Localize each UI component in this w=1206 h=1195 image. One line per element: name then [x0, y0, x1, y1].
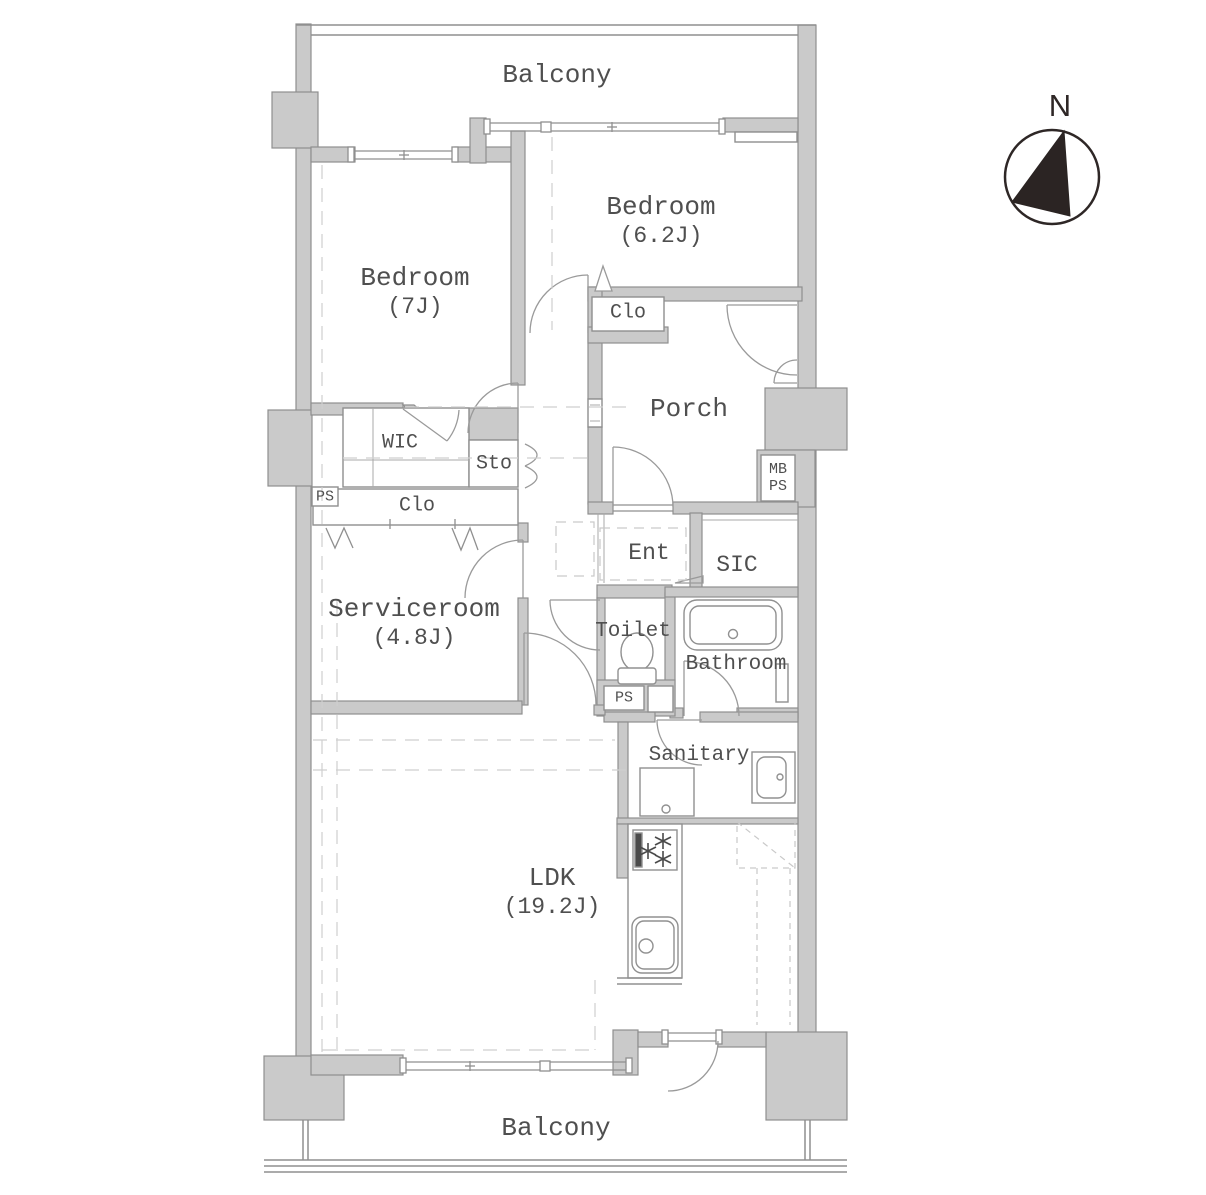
wall-left-outer [296, 24, 311, 1060]
wall-ent-south [597, 585, 672, 598]
ldk-size: (19.2J) [504, 894, 601, 920]
duct-box [648, 686, 673, 712]
wall-kitchen-north [617, 818, 798, 824]
door-porch-outer [727, 305, 797, 383]
window-bedroom1 [348, 147, 458, 162]
washing-machine [640, 768, 694, 816]
wall-bedroom-divider [511, 131, 525, 385]
door-balcony [668, 1041, 718, 1091]
hanger-mark-right [452, 528, 478, 550]
wall-serviceroom-south [311, 701, 522, 714]
door-front-entrance [613, 447, 673, 507]
wall-bathroom-north [665, 587, 798, 597]
floor-plan: Balcony Bedroom (7J) Bedroom (6.2J) Clo … [0, 0, 1206, 1195]
room-label-clo-mid: Clo [399, 495, 435, 518]
washbasin [752, 752, 795, 803]
compass [1005, 130, 1099, 224]
mbps-line-mb: MB [769, 461, 787, 478]
room-label-bathroom: Bathroom [686, 653, 787, 677]
wall-serviceroom-east-top [518, 523, 528, 542]
bedroom-6j-size: (6.2J) [620, 223, 703, 249]
bedroom-7j-name: Bedroom [360, 264, 469, 294]
room-label-bedroom-7j: Bedroom (7J) [360, 264, 469, 320]
room-label-sic: SIC [716, 552, 757, 578]
room-label-ps-left: PS [316, 488, 334, 505]
room-label-ent: Ent [628, 540, 669, 566]
room-label-porch: Porch [650, 395, 728, 425]
bedroom-7j-size: (7J) [387, 294, 442, 320]
mbps-line-ps: PS [769, 478, 787, 495]
wall-kitchen-west [617, 824, 628, 878]
wall-porch-west-lower [588, 427, 602, 504]
wall-pillar-bottom-right [766, 1032, 847, 1120]
ldk-name: LDK [529, 864, 576, 894]
room-label-mbps: MB PS [769, 461, 787, 496]
wall-pillar-top-left [272, 92, 318, 148]
parapet-lines [296, 25, 816, 35]
serviceroom-name: Serviceroom [328, 595, 500, 625]
wall-pillar-porch-right [765, 388, 847, 450]
wall-serviceroom-east-bottom [518, 598, 528, 705]
door-toilet [550, 600, 600, 650]
room-label-ps-small: PS [615, 689, 633, 706]
room-label-toilet: Toilet [595, 620, 671, 644]
bathtub [684, 600, 782, 650]
floor-plan-drawing [0, 0, 1206, 1195]
room-label-balcony-bottom: Balcony [501, 1114, 610, 1144]
room-label-serviceroom: Serviceroom (4.8J) [328, 595, 500, 651]
wall-pillar-mid-left [268, 410, 312, 486]
window-ldk [400, 1058, 632, 1073]
room-label-balcony-top: Balcony [502, 61, 611, 91]
room-label-bedroom-6j: Bedroom (6.2J) [606, 193, 715, 249]
room-label-clo-upper: Clo [610, 302, 646, 325]
window-balcony-door [662, 1030, 722, 1044]
hall-mat [556, 522, 594, 576]
wall-sanitary-north-right [700, 712, 798, 722]
room-label-ldk: LDK (19.2J) [504, 864, 601, 920]
dashed-fridge [737, 822, 795, 1025]
vent-slot [735, 132, 797, 142]
wall-porch-south-right [673, 502, 798, 514]
wall-porch-south-left [588, 502, 613, 514]
wall-sanitary-north-left [604, 712, 655, 722]
room-label-sto: Sto [476, 453, 512, 476]
door-sill-ent [613, 505, 673, 511]
wall-sanitary-west [618, 722, 628, 820]
door-serviceroom [465, 540, 523, 598]
wall-ldk-south-right [718, 1032, 766, 1047]
porch-window-slot [588, 399, 602, 427]
bedroom-6j-name: Bedroom [606, 193, 715, 223]
wall-bedroom2-north-right [723, 118, 798, 132]
wall-right-outer [798, 25, 816, 1035]
hanger-mark-left [326, 528, 353, 548]
compass-north-label: N [1049, 88, 1071, 124]
room-label-sanitary: Sanitary [649, 744, 750, 768]
serviceroom-size: (4.8J) [373, 625, 456, 651]
room-label-wic: WIC [382, 432, 418, 455]
door-ldk-hall [524, 633, 596, 705]
stove [633, 830, 677, 870]
door-sto-bifold [525, 444, 537, 488]
walls [264, 24, 847, 1120]
kitchen-sink [632, 917, 678, 973]
wall-ldk-south-left [311, 1055, 403, 1075]
